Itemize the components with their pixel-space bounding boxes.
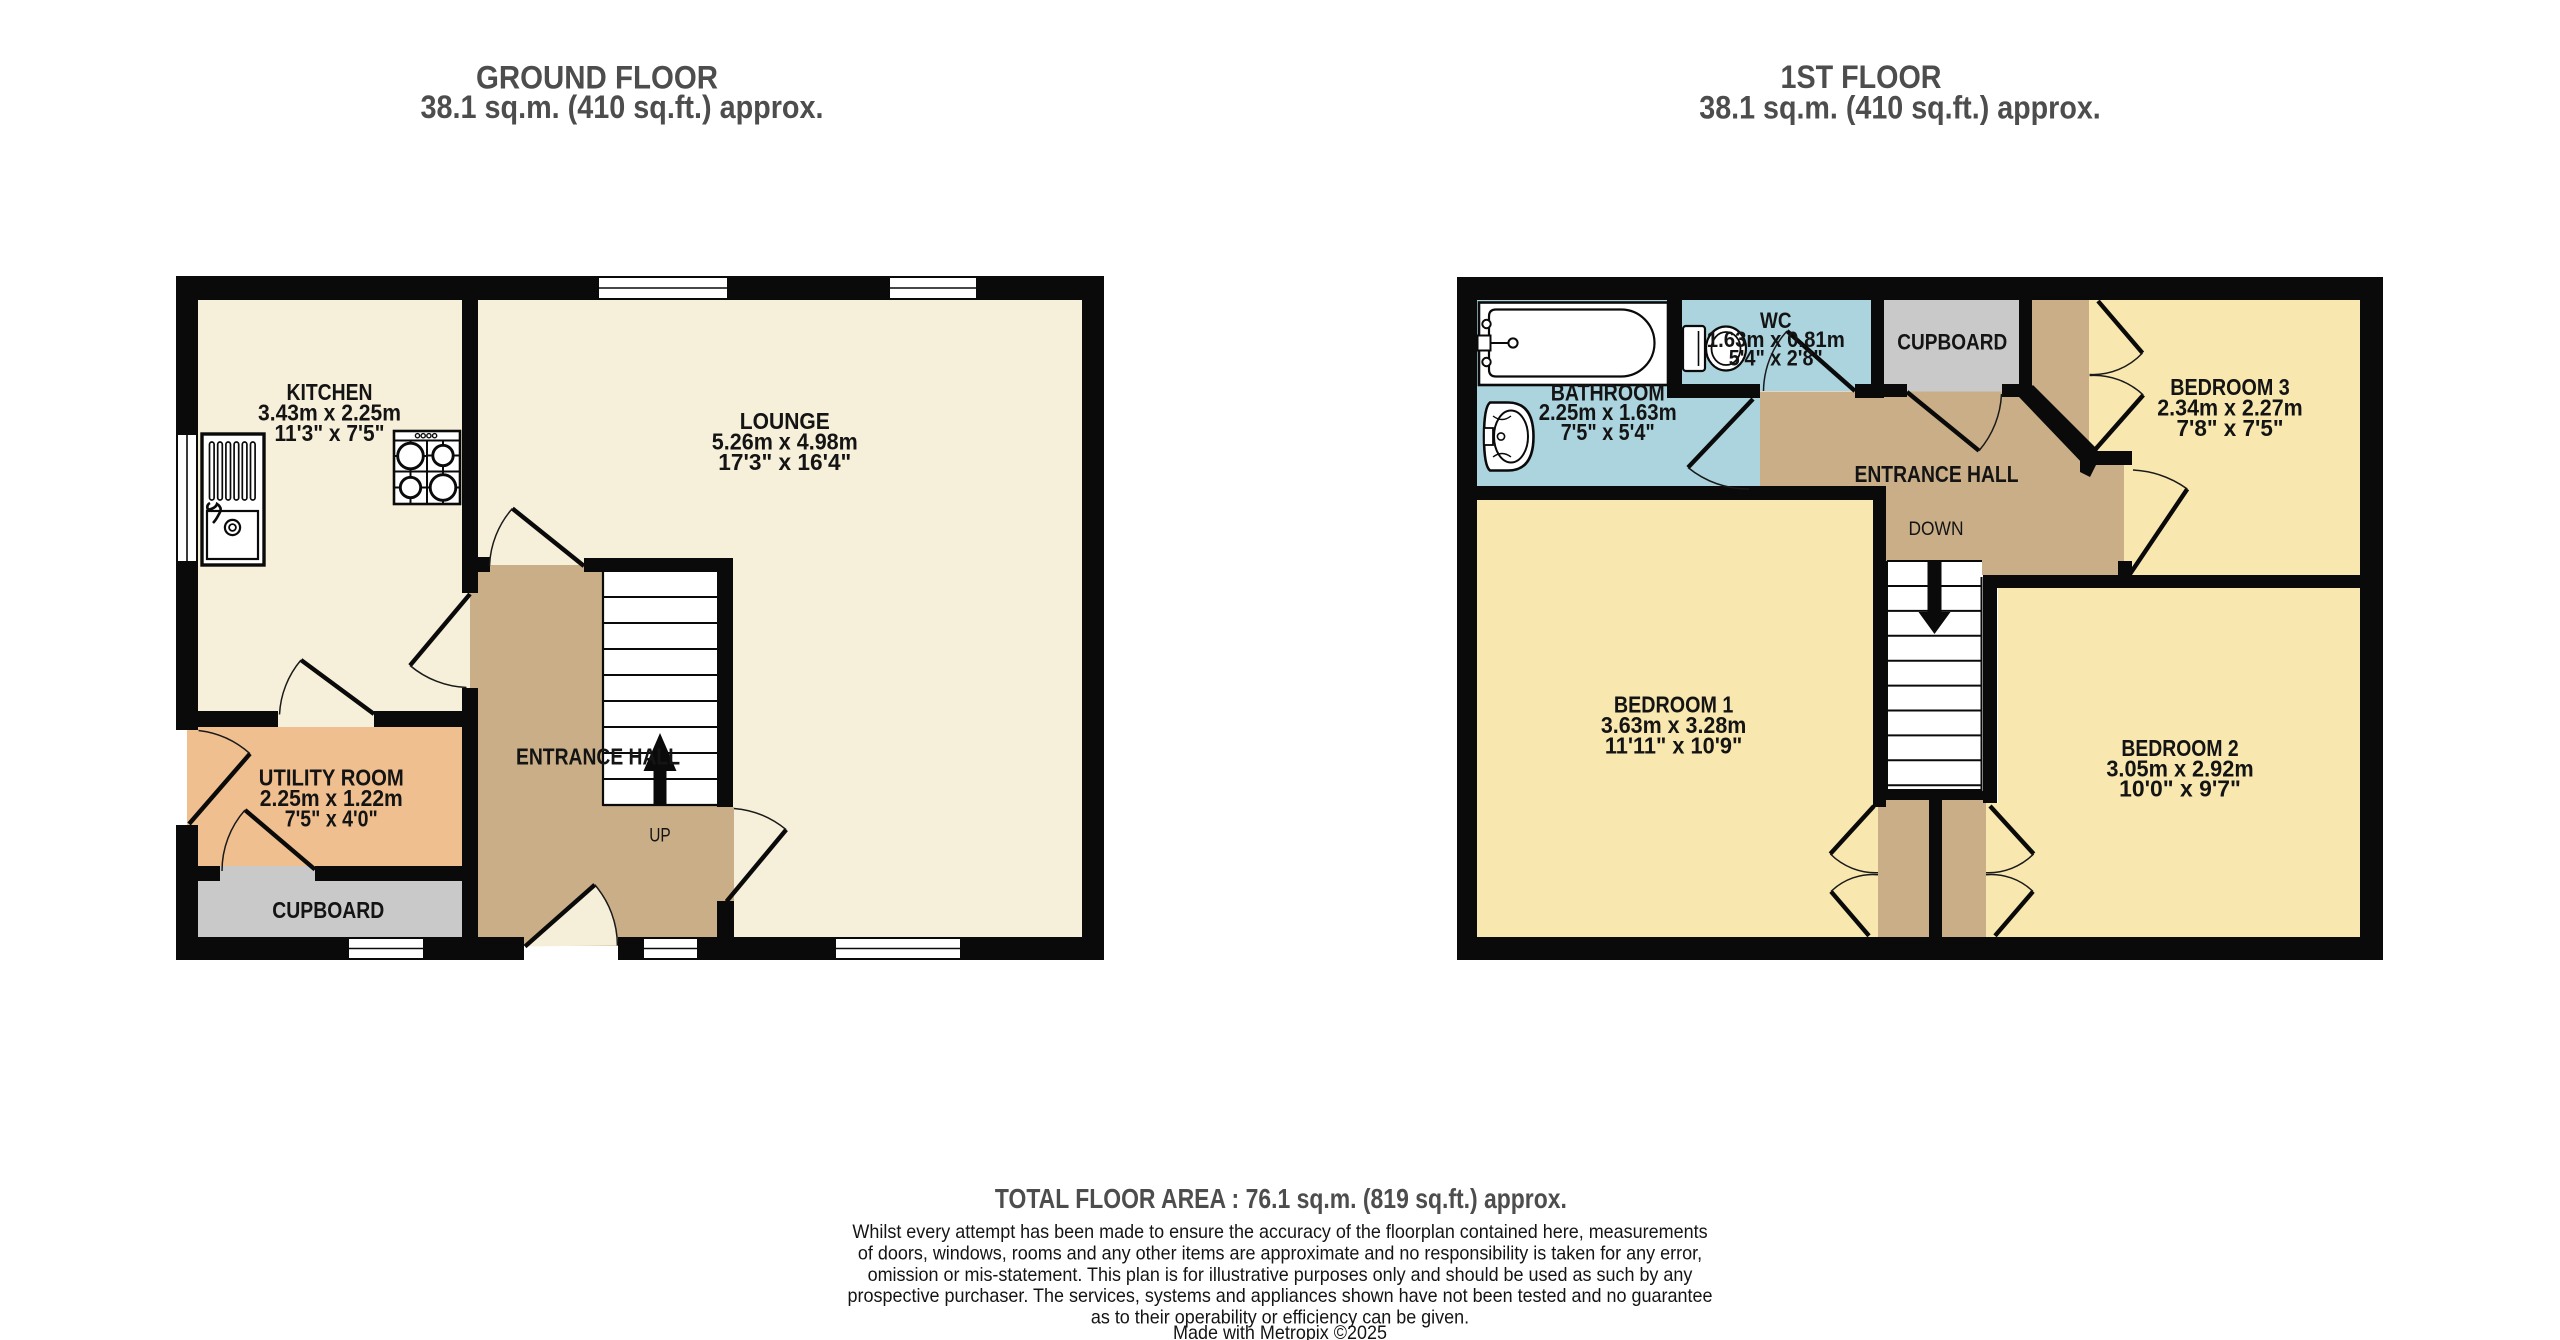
svg-text:7'5" x 5'4": 7'5" x 5'4" xyxy=(1561,419,1655,445)
svg-text:38.1 sq.m. (410 sq.ft.) approx: 38.1 sq.m. (410 sq.ft.) approx. xyxy=(1699,90,2101,126)
svg-text:DOWN: DOWN xyxy=(1909,519,1964,540)
svg-text:38.1 sq.m. (410 sq.ft.) approx: 38.1 sq.m. (410 sq.ft.) approx. xyxy=(421,89,824,125)
svg-text:CUPBOARD: CUPBOARD xyxy=(272,897,384,923)
svg-text:17'3" x 16'4": 17'3" x 16'4" xyxy=(718,449,851,475)
svg-text:ENTRANCE HALL: ENTRANCE HALL xyxy=(1855,461,2019,487)
svg-text:of doors, windows, rooms and a: of doors, windows, rooms and any other i… xyxy=(858,1243,1702,1265)
svg-text:CUPBOARD: CUPBOARD xyxy=(1897,330,2007,355)
svg-text:TOTAL FLOOR AREA : 76.1 sq.m.: TOTAL FLOOR AREA : 76.1 sq.m. (819 sq.ft… xyxy=(995,1183,1567,1214)
svg-text:ENTRANCE HALL: ENTRANCE HALL xyxy=(516,744,680,770)
svg-text:10'0" x 9'7": 10'0" x 9'7" xyxy=(2119,776,2241,802)
svg-text:omission or mis-statement. Thi: omission or mis-statement. This plan is … xyxy=(868,1264,1693,1286)
svg-text:UP: UP xyxy=(649,826,671,847)
svg-text:Made with Metropix ©2025: Made with Metropix ©2025 xyxy=(1173,1322,1387,1340)
svg-text:Whilst every attempt has been: Whilst every attempt has been made to en… xyxy=(852,1221,1707,1243)
svg-text:7'5" x 4'0": 7'5" x 4'0" xyxy=(285,806,378,832)
svg-text:5'4" x 2'8": 5'4" x 2'8" xyxy=(1729,346,1823,371)
svg-text:prospective purchaser. The ser: prospective purchaser. The services, sys… xyxy=(848,1285,1713,1307)
svg-text:7'8" x 7'5": 7'8" x 7'5" xyxy=(2177,415,2284,441)
svg-text:11'11" x 10'9": 11'11" x 10'9" xyxy=(1605,733,1743,759)
svg-text:11'3" x 7'5": 11'3" x 7'5" xyxy=(275,420,385,446)
